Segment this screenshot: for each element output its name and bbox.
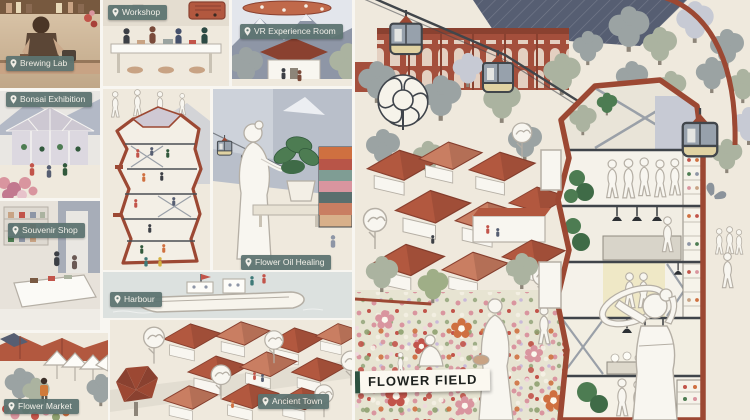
zone-label-text: Brewing Lab [20,59,67,68]
zone-label-harbour: Harbour [110,292,162,307]
zone-label-workshop: Workshop [108,5,167,20]
flower-field-label-text: FLOWER FIELD [368,372,478,389]
zone-label-text: VR Experience Room [254,27,336,36]
location-pin-icon [262,397,269,406]
masterview-scene [355,0,750,420]
location-pin-icon [112,8,119,17]
zone-label-brewing-lab: Brewing Lab [6,56,74,71]
panel-workshop: Workshop [103,0,229,86]
zone-label-text: Workshop [122,8,160,17]
red-machine [189,2,225,19]
location-pin-icon [12,226,19,235]
panel-souvenir-shop: Souvenir Shop [0,201,100,330]
zone-label-text: Souvenir Shop [22,226,78,235]
panel-ancient-town: Ancient Town [110,320,352,420]
location-pin-icon [10,95,17,104]
vr-room-scene [232,0,352,86]
zone-label-text: Harbour [124,295,155,304]
zone-label-text: Ancient Town [272,397,322,406]
zone-label-text: Flower Oil Healing [255,258,324,267]
location-pin-icon [245,258,252,267]
panel-flower-market: Flower Market [0,333,108,420]
panel-bonsai-exhibition: Bonsai Exhibition [0,91,100,198]
panel-tower-section [103,89,210,270]
panel-brewing-lab: Brewing Lab [0,0,100,88]
brewing-lab-scene [0,0,100,88]
location-pin-icon [8,402,15,411]
architecture-presentation-board: Brewing Lab [0,0,750,420]
panel-harbour: Harbour [103,272,352,318]
zone-label-bonsai-exhibition: Bonsai Exhibition [6,92,92,107]
flower-field-label: FLOWER FIELD [355,369,490,394]
panel-vr-experience-room: VR Experience Room [232,0,352,86]
souvenir-scene [0,201,100,330]
location-pin-icon [114,295,121,304]
mural-tapestry [319,147,352,227]
tower-section-scene [103,89,210,270]
panel-flower-field-masterview: FLOWER FIELD [355,0,750,420]
zone-label-text: Bonsai Exhibition [20,95,85,104]
panel-flower-oil-healing: Flower Oil Healing [213,89,352,270]
zone-label-vr-experience-room: VR Experience Room [240,24,343,39]
aerial-table [243,1,331,15]
zone-label-ancient-town: Ancient Town [258,394,329,409]
zone-label-flower-market: Flower Market [4,399,79,414]
tower-shelf-products [683,152,703,318]
location-pin-icon [10,59,17,68]
location-pin-icon [244,27,251,36]
zone-label-souvenir-shop: Souvenir Shop [8,223,85,238]
zone-label-text: Flower Market [18,402,72,411]
zone-label-flower-oil-healing: Flower Oil Healing [241,255,331,270]
healing-scene [213,89,352,270]
bonsai-scene [0,91,100,198]
